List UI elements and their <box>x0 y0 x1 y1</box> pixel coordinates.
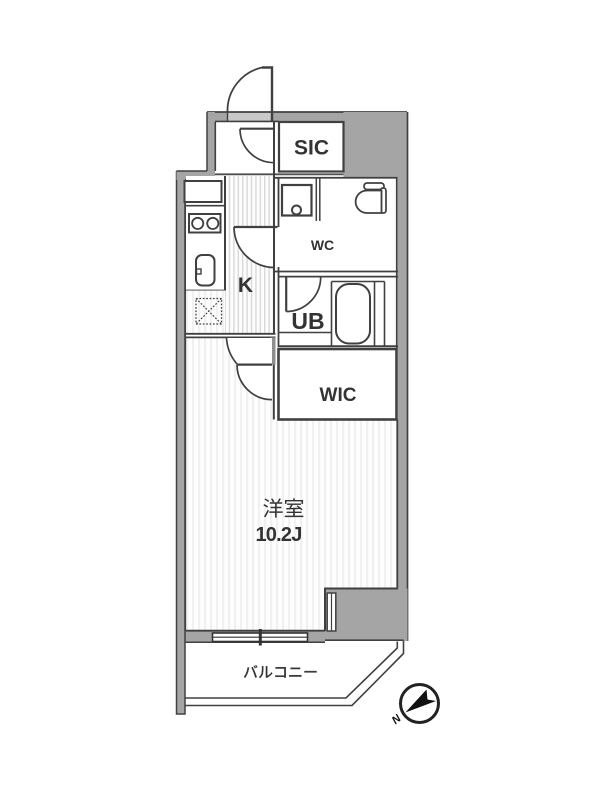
svg-text:WIC: WIC <box>320 385 357 406</box>
svg-text:UB: UB <box>291 308 324 334</box>
svg-text:K: K <box>238 274 253 297</box>
svg-text:WC: WC <box>311 237 334 253</box>
svg-text:10.2J: 10.2J <box>255 524 301 546</box>
svg-text:SIC: SIC <box>294 137 329 160</box>
